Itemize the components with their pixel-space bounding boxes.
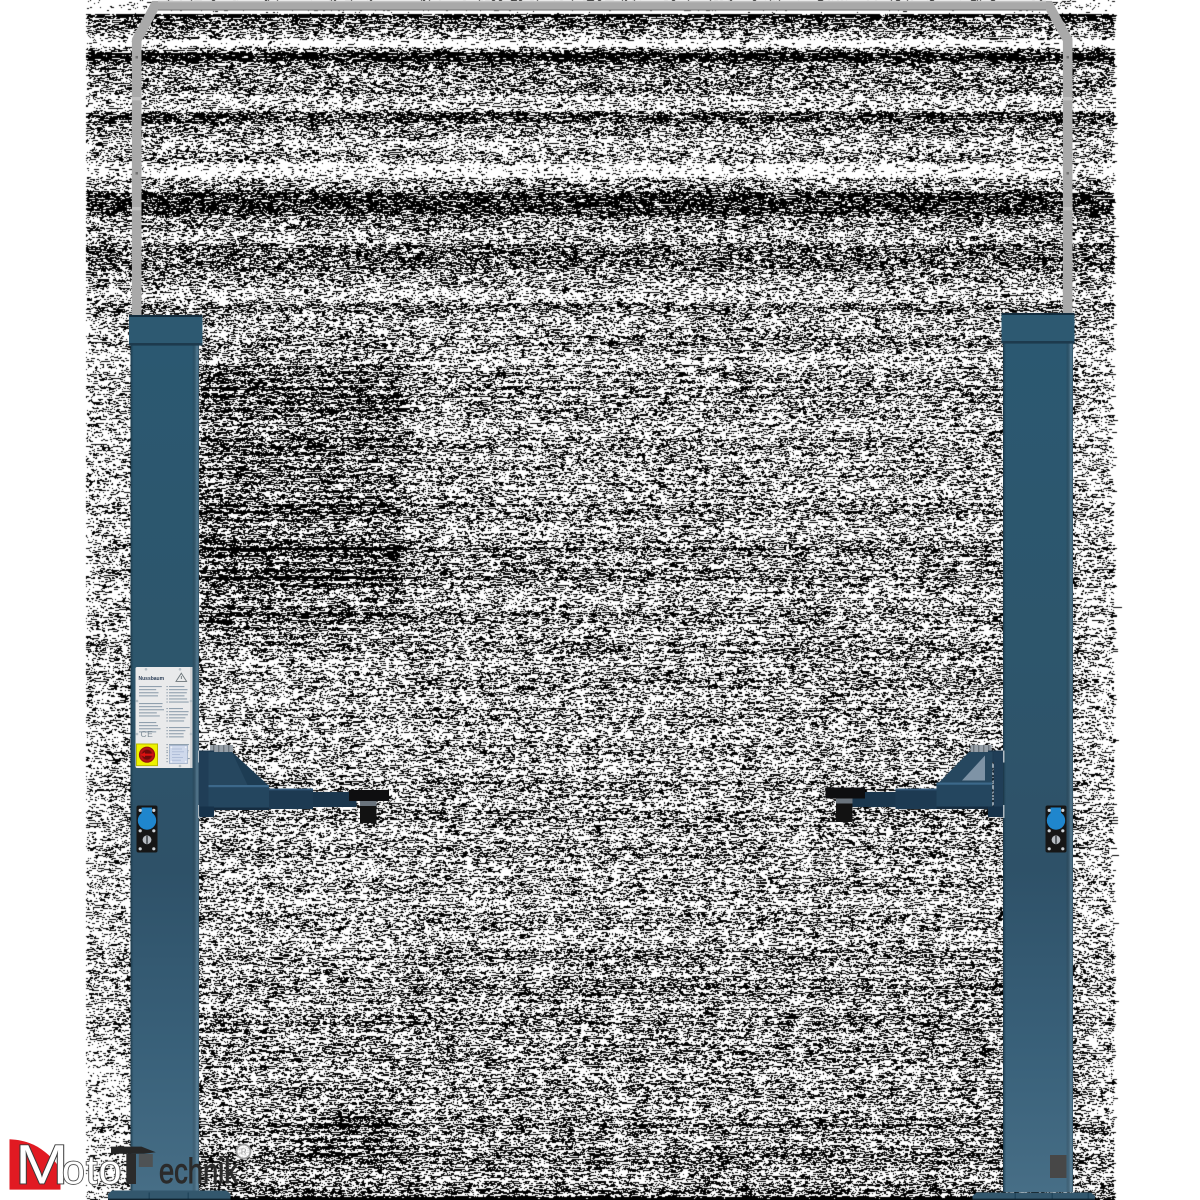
svg-text:Nussbaum: Nussbaum	[139, 676, 165, 682]
svg-text:CE: CE	[141, 729, 154, 739]
svg-text:R: R	[241, 1148, 247, 1157]
svg-text:echnik: echnik	[159, 1152, 238, 1191]
svg-text:M: M	[15, 1133, 68, 1195]
